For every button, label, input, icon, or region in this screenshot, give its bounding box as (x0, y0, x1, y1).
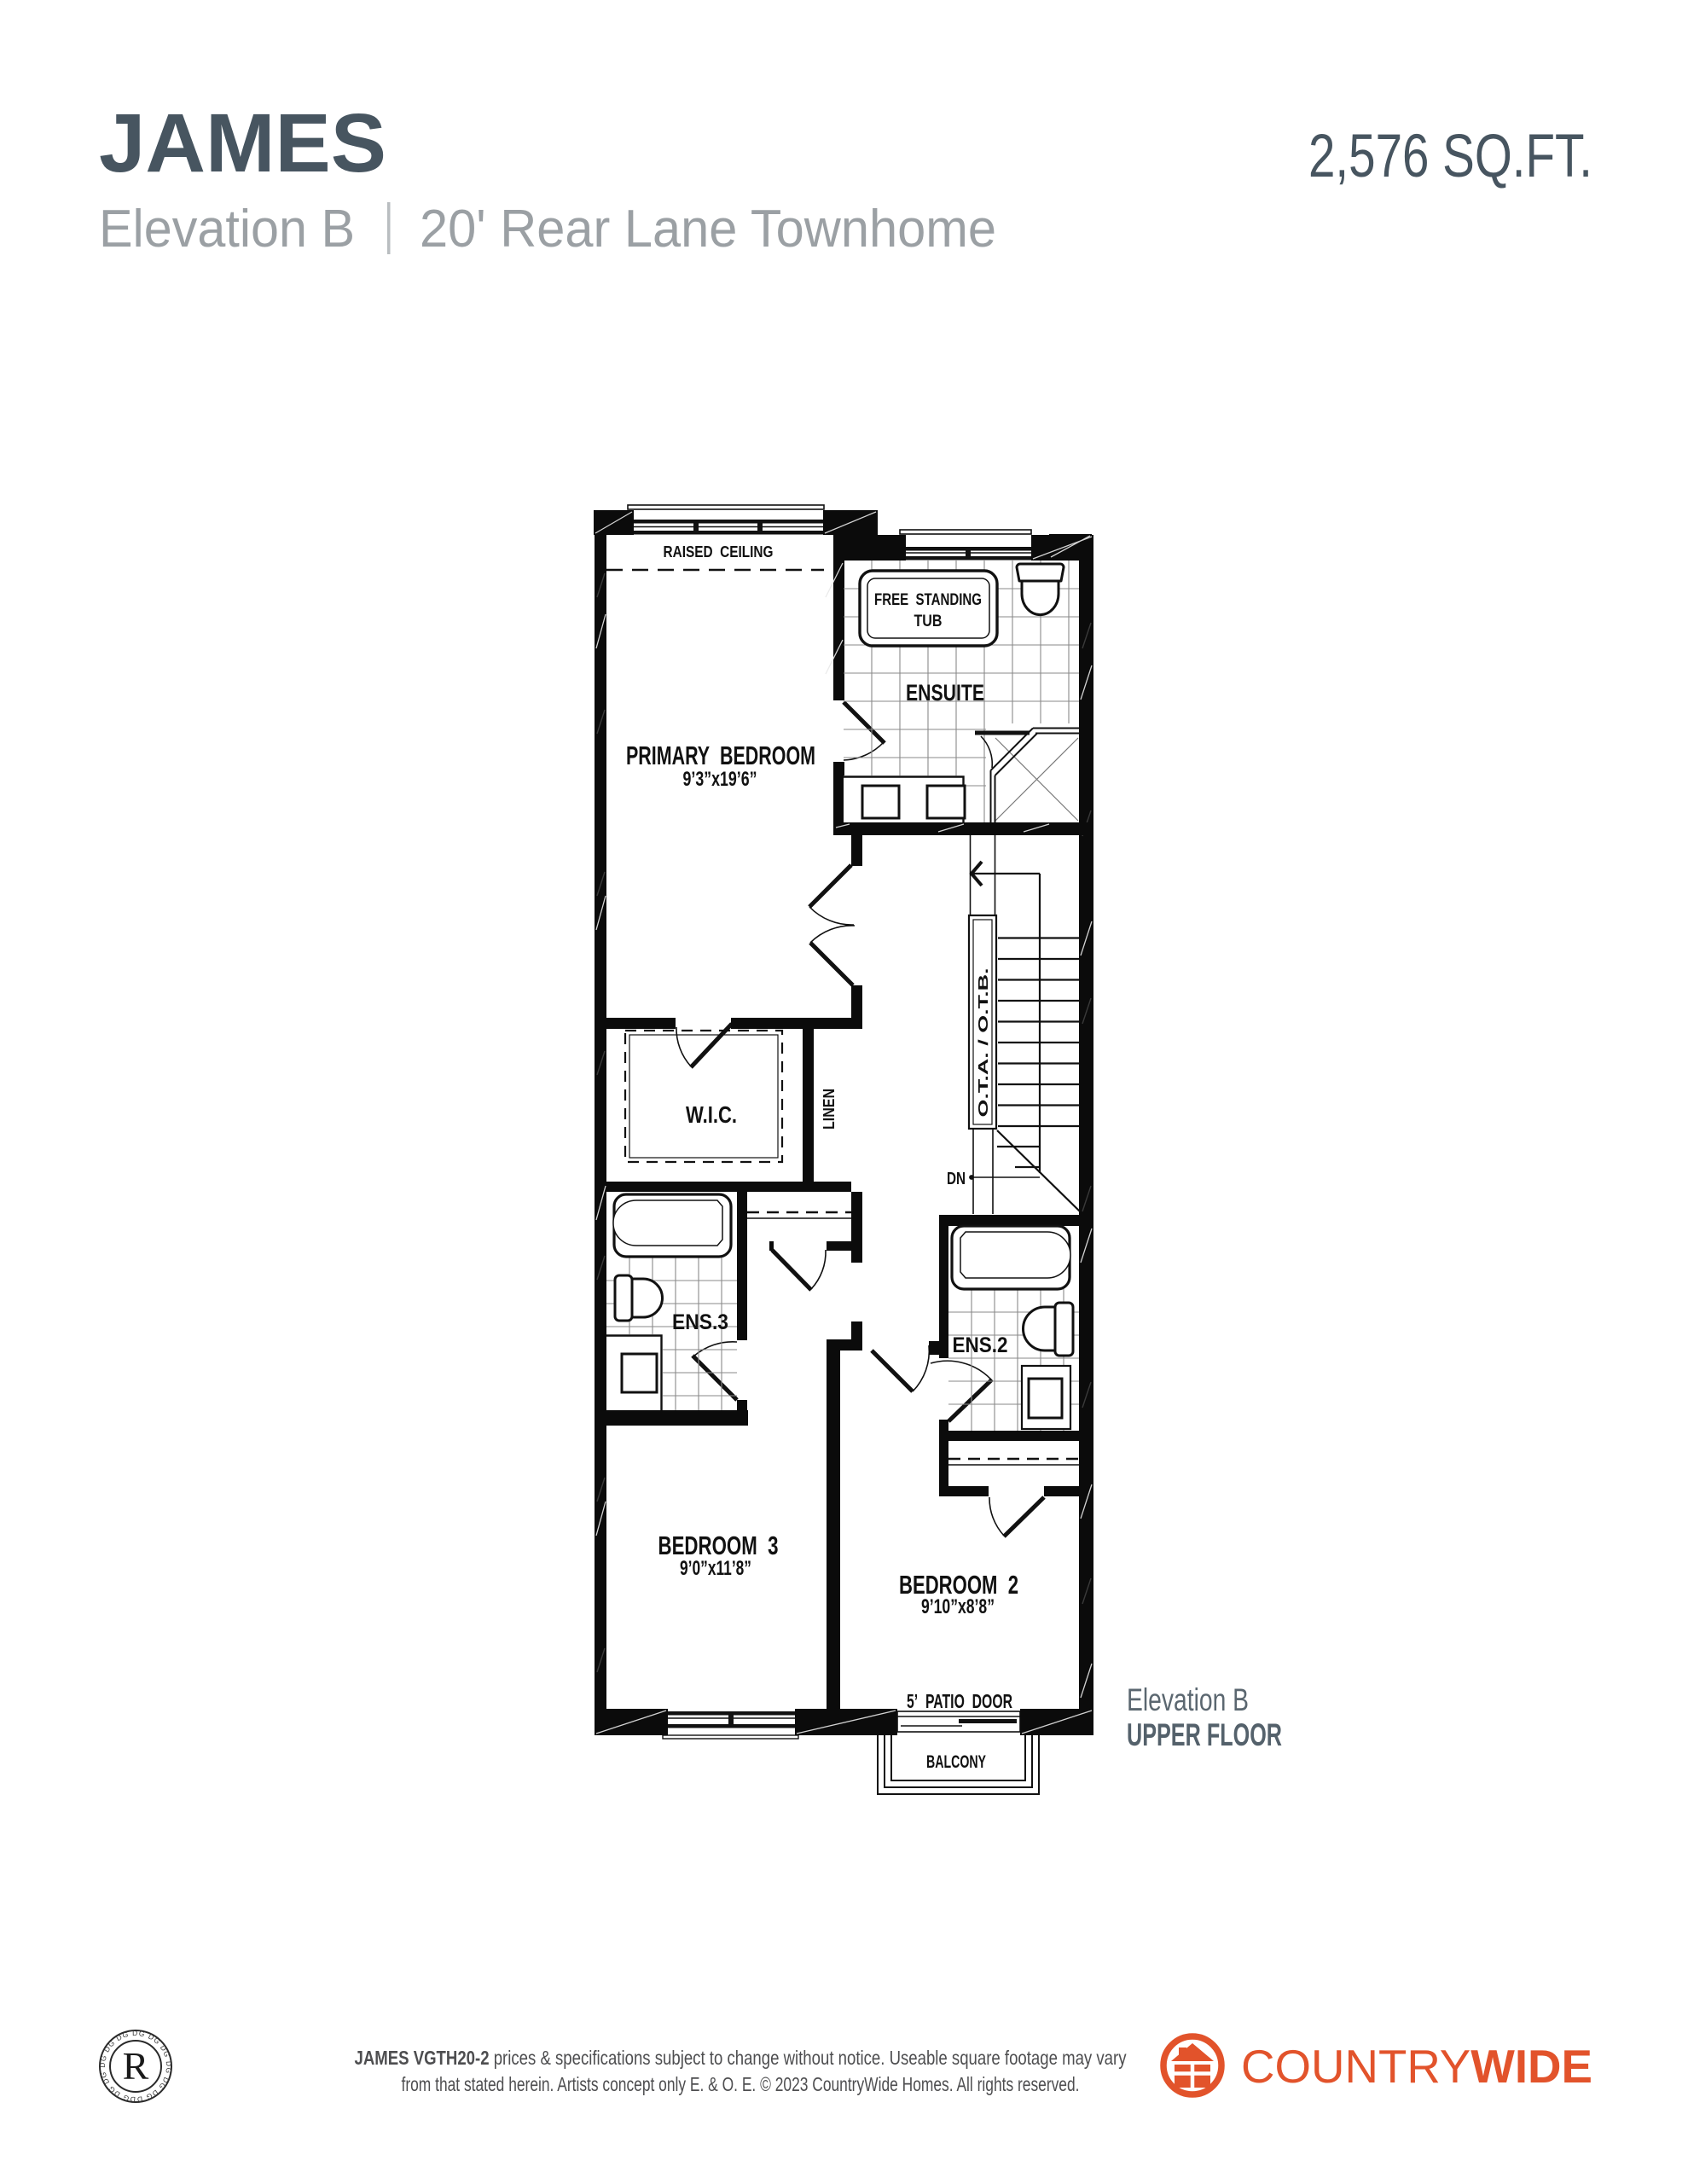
svg-text:BEDROOM 3: BEDROOM 3 (658, 1531, 779, 1560)
svg-text:PRIMARY BEDROOM: PRIMARY BEDROOM (626, 741, 815, 770)
svg-text:RAISED CEILING: RAISED CEILING (664, 543, 774, 561)
svg-text:20' Rear Lane Townhome: 20' Rear Lane Townhome (420, 200, 996, 258)
svg-text:from that stated herein. Artis: from that stated herein. Artists concept… (402, 2073, 1080, 2095)
svg-text:ENS.2: ENS.2 (953, 1333, 1008, 1357)
svg-text:UPPER FLOOR: UPPER FLOOR (1127, 1717, 1282, 1752)
svg-text:DG DG DG DG DG DG DG DG DG DG: DG DG DG DG DG DG DG DG DG DG DG DG DG D… (0, 0, 173, 2104)
svg-text:BALCONY: BALCONY (926, 1752, 986, 1772)
svg-text:ENS.3: ENS.3 (672, 1310, 728, 1334)
svg-text:Elevation B: Elevation B (99, 200, 355, 258)
svg-text:O.T.A. / O.T.B.: O.T.A. / O.T.B. (977, 968, 991, 1118)
svg-text:5’ PATIO DOOR: 5’ PATIO DOOR (907, 1690, 1012, 1712)
svg-text:9’0”x11’8”: 9’0”x11’8” (680, 1557, 751, 1580)
svg-text:Elevation B: Elevation B (1127, 1682, 1249, 1717)
svg-text:ENSUITE: ENSUITE (906, 680, 984, 706)
svg-text:COUNTRYWIDE: COUNTRYWIDE (1241, 2040, 1592, 2093)
svg-text:2,576 SQ.FT.: 2,576 SQ.FT. (1308, 123, 1592, 190)
svg-text:JAMES VGTH20-2 prices & specif: JAMES VGTH20-2 prices & specifications s… (355, 2047, 1127, 2069)
svg-text:LINEN: LINEN (821, 1089, 838, 1130)
svg-text:9’3”x19’6”: 9’3”x19’6” (683, 768, 757, 791)
svg-text:DN: DN (947, 1170, 966, 1188)
svg-text:R: R (123, 2044, 149, 2088)
svg-text:W.I.C.: W.I.C. (686, 1101, 737, 1128)
svg-text:FREE STANDING: FREE STANDING (874, 591, 982, 609)
svg-text:9’10”x8’8”: 9’10”x8’8” (921, 1595, 995, 1618)
svg-text:TUB: TUB (914, 613, 943, 630)
svg-text:JAMES: JAMES (99, 96, 386, 189)
